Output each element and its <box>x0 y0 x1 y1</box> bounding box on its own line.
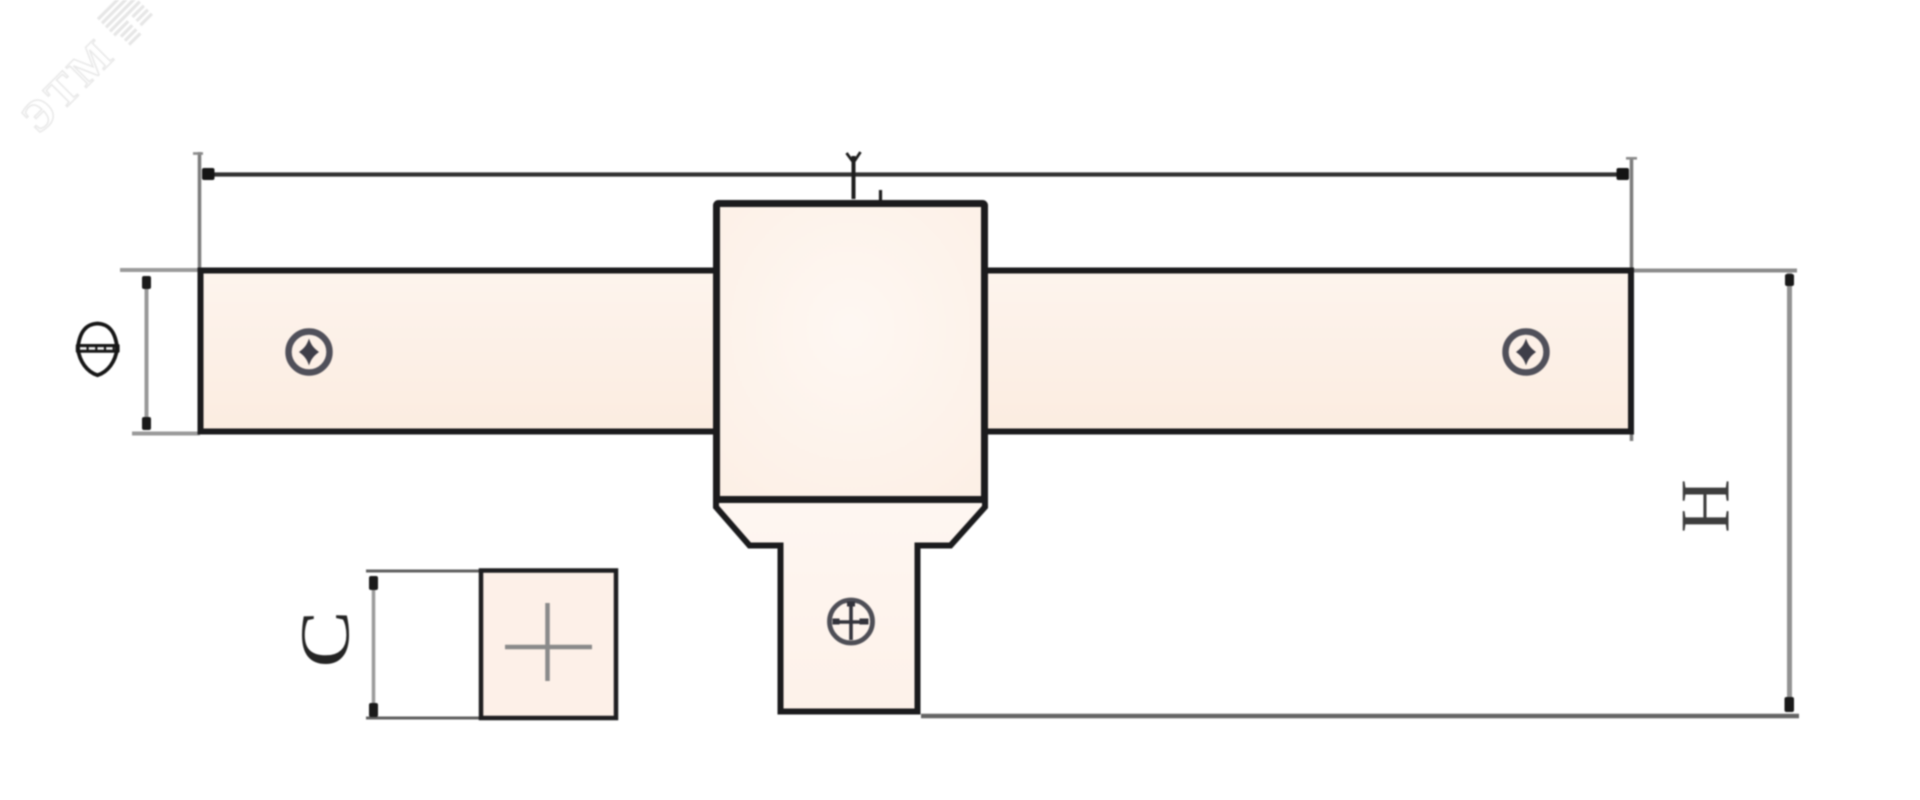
svg-text:H: H <box>1666 479 1744 533</box>
svg-text:ЭТМ: ЭТМ <box>11 28 125 142</box>
svg-text:C: C <box>286 611 364 668</box>
